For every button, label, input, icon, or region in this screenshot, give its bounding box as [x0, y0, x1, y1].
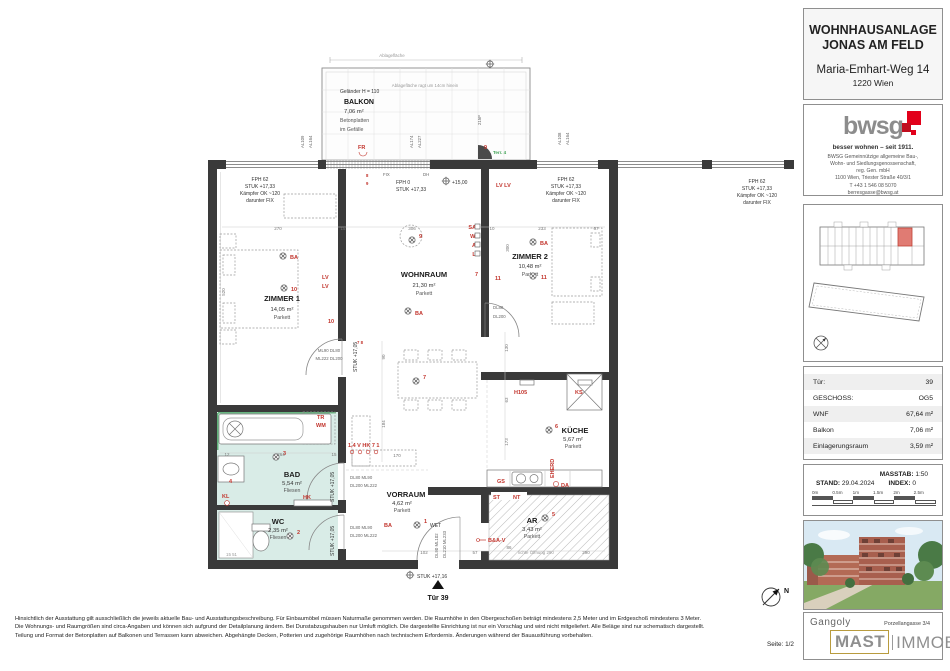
table-row: GESCHOSS: OG5 [804, 390, 942, 406]
al-label: AL108 [557, 132, 562, 145]
room-floor: Fliesen [284, 488, 301, 494]
mark: ST [493, 495, 501, 501]
room-floor: Parkett [416, 291, 433, 297]
mark: DA [561, 483, 569, 489]
outlet-symbol [414, 522, 420, 528]
mast-logo-block: Gangoly Porzellangasse 3/4 MAST IMMOBILI… [803, 612, 943, 660]
room-area: 2,35 m² [268, 528, 288, 534]
bwsg-address-line: Wohn- und Siedlungsgenossenschaft, [804, 161, 942, 168]
project-street: Maria-Emhart-Weg 14 [804, 64, 942, 76]
scale-tick: 1.5m [873, 490, 893, 495]
sliding-door-band [326, 160, 430, 169]
mast-logo: MAST IMMOBILIEN [830, 630, 936, 654]
window-annotations: FPH 62 STUK +17,33 Kämpfer OK ~120 darun… [240, 172, 777, 206]
room-floor: Parkett [524, 534, 541, 540]
mark: B&A-V [488, 538, 506, 544]
disclaimer-line: Teilung und Format der Betonplatten auf … [15, 632, 793, 640]
balkon-area: 7,06 m² [344, 109, 364, 115]
win-ann: FPH 0 [396, 180, 410, 186]
level-value: +15,00 [452, 180, 468, 186]
outlet-symbol [413, 378, 419, 384]
door-label: ML90 DL80 [318, 348, 341, 353]
win-ann: darunter FIX [743, 200, 771, 206]
sink-icon [530, 475, 538, 483]
disclaimer-line: Hinsichtlich der Ausstattung gilt aussch… [15, 615, 793, 623]
win-ann: STUK +17,33 [742, 186, 772, 192]
bwsg-address-line: 1100 Wien, Triester Straße 40/3/1 [804, 175, 942, 182]
door-label: DL200 ML222 [350, 483, 378, 488]
site-outline [809, 283, 924, 321]
room-floor: Fliesen [270, 535, 287, 541]
site-compass-icon [814, 336, 828, 350]
disclaimer-text: Hinsichtlich der Ausstattung gilt aussch… [15, 615, 793, 640]
win-ann: darunter FIX [552, 198, 580, 204]
win-ann: Kämpfer OK ~120 [240, 191, 280, 197]
project-name-line1: WOHNHAUSANLAGE [804, 23, 942, 38]
bwsg-address: BWSG Gemeinnützige allgemeine Bau-, Wohn… [804, 154, 942, 197]
room-area: 5,54 m² [282, 481, 302, 487]
mark: 5 [552, 512, 555, 518]
mark: BA [384, 523, 392, 529]
row-label: GESCHOSS: [813, 395, 853, 402]
room-area: 3,43 m² [522, 527, 542, 533]
mark: BA [415, 311, 423, 317]
bwsg-address-line: berresgasse@bwsg.at [804, 190, 942, 197]
index-value: 0 [912, 480, 916, 487]
room-label-balkon: BALKON [344, 99, 374, 106]
page-number: Seite: 1/2 [748, 641, 794, 648]
highlighted-unit [898, 228, 912, 246]
mark: LV [322, 284, 329, 290]
mark: 6 [555, 424, 558, 430]
bwsg-red-square-icon [911, 130, 916, 135]
scale-bar [812, 496, 936, 506]
door-label: DL80 [493, 305, 504, 310]
mark: EHERD [550, 459, 556, 478]
opening-note: lichte Öffnung 290 [518, 550, 554, 555]
door-label: DL200 ML222 [350, 533, 378, 538]
mark: WM [316, 423, 326, 429]
mark: 7 [423, 375, 426, 381]
scale-tick: 0.5m [832, 490, 852, 495]
level-label: STUK +17,05 [353, 342, 359, 372]
table-row: Balkon 7,06 m² [804, 422, 942, 438]
fr-mark: FR [358, 145, 365, 151]
bwsg-address-line: reg. Gen. mbH [804, 168, 942, 175]
dim: 90 [381, 354, 386, 360]
dim: 290 [582, 550, 590, 555]
table-row: Tür: 39 [804, 374, 942, 390]
dim: 520 [221, 288, 226, 296]
scale-tick: 1m [853, 490, 873, 495]
scale-tick: 2m [893, 490, 913, 495]
outlet-symbol [530, 273, 536, 279]
al-label: AL227 [417, 135, 422, 148]
bwsg-address-line: BWSG Gemeinnützige allgemeine Bau-, [804, 154, 942, 161]
project-name-line2: JONAS AM FELD [804, 38, 942, 53]
shaft-dims: 15 51 [226, 552, 238, 557]
north-label: N [784, 588, 789, 595]
dim: 173 [504, 438, 509, 446]
dim: 102 [420, 550, 428, 555]
al-label: AL109 [300, 135, 305, 148]
outlet-symbol [530, 239, 536, 245]
mark: BA [290, 255, 298, 261]
win-ann: DH [423, 172, 429, 177]
lv-marks: LV LV [496, 183, 511, 189]
dim: 233 [538, 226, 546, 231]
disclaimer-line: Die Wohnungs- und Raumgrößen sind circa-… [15, 623, 793, 631]
mark: HK [303, 495, 311, 501]
row-value: OG5 [919, 395, 933, 402]
entrance-door-label: WET [430, 523, 441, 529]
mast-address: Porzellangasse 3/4 [884, 621, 930, 627]
bwsg-red-square-icon [902, 123, 911, 132]
balcony-top-note: Ablagefläche [379, 53, 405, 58]
door-label: DL90 ML102 [434, 533, 439, 558]
outlet-symbol [542, 515, 548, 521]
terrace-door-tag: Terr. 4 [493, 150, 507, 155]
immobilien-wordmark: IMMOBILIEN [892, 635, 950, 650]
dim: 15 [340, 226, 346, 231]
mark: 10 [291, 287, 297, 293]
room-floor: Parkett [274, 315, 291, 321]
room-name: ZIMMER 2 [512, 252, 548, 261]
building-rendering [803, 520, 943, 610]
win-ann: STUK +17,33 [551, 184, 581, 190]
room-name: AR [527, 516, 538, 525]
row-label: Einlagerungsraum [813, 443, 868, 450]
al-label: 215P [477, 115, 482, 125]
room-floor: Parkett [394, 508, 411, 514]
dim: 130 [504, 344, 509, 352]
balcony-area: Ablagefläche Ablagefläche ragt um 14cm h… [322, 53, 530, 160]
row-label: WNF [813, 411, 828, 418]
door-label: DL210 ML233 [442, 530, 447, 558]
mark: 7 [475, 272, 478, 278]
dim: 86 [506, 545, 512, 550]
level-label: STUK +17,16 [417, 574, 447, 580]
outlet-symbol [280, 253, 286, 259]
al-label: AL164 [308, 135, 313, 148]
row-value: 39 [925, 379, 933, 386]
outlet-symbol [287, 533, 293, 539]
level-label: STUK +17,05 [330, 472, 336, 502]
scale-bar-labels: 0m 0.5m 1m 1.5m 2m 2.5m [812, 490, 934, 495]
site-plan-drawing [804, 205, 942, 361]
bwsg-wordmark: bwsg [843, 112, 903, 140]
project-title-block: WOHNHAUSANLAGE JONAS AM FELD Maria-Emhar… [803, 8, 943, 100]
win-ann: Kämpfer OK ~120 [546, 191, 586, 197]
outlet-symbol [405, 308, 411, 314]
dim: 170 [393, 453, 401, 458]
scale-block: MASSTAB: 1:50 STAND: 29.04.2024 INDEX: 0… [803, 464, 943, 516]
dim: 184 [381, 420, 386, 428]
room-name: ZIMMER 1 [264, 294, 300, 303]
level-symbol [442, 177, 450, 185]
index-label: INDEX: [889, 480, 911, 487]
balcony-mark-9: 9 [484, 145, 487, 151]
mark: LV [322, 275, 329, 281]
row-value: 67,64 m² [906, 411, 933, 418]
mark: GS [497, 479, 505, 485]
scale-tick: 2.5m [914, 490, 934, 495]
al-label: AL164 [565, 132, 570, 145]
mark: 11 [541, 275, 547, 281]
table-row: WNF 67,64 m² [804, 406, 942, 422]
mark: H105 [514, 390, 527, 396]
dim: 264 [277, 452, 285, 457]
entrance-door-number: Tür 39 [427, 595, 448, 602]
circuit-mark: 9 [366, 181, 369, 186]
table-row: Einlagerungsraum 3,59 m² [804, 438, 942, 454]
basin-icon [223, 463, 239, 475]
win-ann: FPH 62 [749, 179, 766, 185]
dim: 57 [472, 550, 478, 555]
bwsg-tagline: besser wohnen – seit 1911. [804, 144, 942, 151]
dim: 67 [593, 226, 599, 231]
door-label: DL80 ML90 [350, 475, 373, 480]
floorplan-sheet: { "header": {"line1":"WOHNHAUSANLAGE","l… [0, 0, 950, 671]
room-name: VORRAUM [387, 490, 426, 499]
dim: 63 [504, 397, 509, 403]
bwsg-logo-block: bwsg besser wohnen – seit 1911. BWSG Gem… [803, 104, 943, 196]
bwsg-address-line: T +43 1 546 08 5070 [804, 183, 942, 190]
dim: 10 [489, 226, 495, 231]
row-value: 7,06 m² [910, 427, 933, 434]
win-ann: STUK +17,33 [245, 184, 275, 190]
balcony-inner-note: Ablagefläche ragt um 14cm hinein [392, 83, 459, 88]
win-ann: FPH 62 [252, 177, 269, 183]
railing-label: Geländer H = 110 [340, 89, 379, 95]
mast-gold-frame-icon: MAST [830, 630, 889, 654]
masstab-label: MASSTAB: [880, 471, 914, 478]
balkon-material-1: Betonplatten [340, 118, 369, 124]
door-label: DL80 ML90 [350, 525, 373, 530]
win-ann: Kämpfer OK ~120 [737, 193, 777, 199]
room-floor: Parkett [565, 444, 582, 450]
outlet-symbol [409, 237, 415, 243]
win-ann: darunter FIX [246, 198, 274, 204]
dim: 12 [224, 452, 230, 457]
dim: 270 [274, 226, 282, 231]
level-symbol [406, 571, 414, 579]
room-area: 5,67 m² [563, 437, 583, 443]
mark: BA [540, 241, 548, 247]
mark: 10 [328, 319, 334, 325]
mark: 9 [419, 234, 422, 240]
dim: 300 [505, 244, 510, 252]
north-arrow-icon: N [762, 588, 789, 606]
row-label: Tür: [813, 379, 825, 386]
win-ann: FIX [383, 172, 390, 177]
win-ann: FPH 62 [558, 177, 575, 183]
level-label: STUK +17,05 [330, 526, 336, 556]
project-city: 1220 Wien [804, 78, 942, 88]
circuit-mark: 8 [366, 173, 369, 178]
mark: 11 [495, 276, 501, 282]
toilet-icon [253, 531, 269, 551]
room-area: 10,48 m² [519, 264, 542, 270]
mark: KS [575, 390, 583, 396]
sink-icon [516, 474, 525, 483]
outlet-symbol [546, 427, 552, 433]
level-symbol [486, 60, 494, 68]
dim: 15 [331, 452, 337, 457]
win-ann: STUK +17,33 [396, 187, 426, 193]
mark: 1 [424, 519, 427, 525]
bwsg-logo: bwsg [843, 113, 903, 143]
unit-info-table: Tür: 39 GESCHOSS: OG5 WNF 67,64 m² Balko… [803, 366, 943, 460]
room-area: 14,05 m² [271, 307, 294, 313]
room-name: BAD [284, 470, 301, 479]
row-label: Balkon [813, 427, 834, 434]
mast-wordmark: MAST [835, 632, 885, 651]
rendering-image [804, 521, 942, 609]
room-name: WOHNRAUM [401, 270, 447, 279]
mark: 1,4 V HK 7 1 [348, 443, 380, 449]
outlet-symbol [281, 285, 287, 291]
mark: 2 [297, 530, 300, 536]
site-plan-block [803, 204, 943, 362]
balkon-material-2: im Gefälle [340, 127, 363, 133]
stand-label: STAND: [816, 480, 840, 487]
mark: KL [222, 494, 230, 500]
dim: 306 [408, 226, 416, 231]
stand-value: 29.04.2024 [842, 480, 875, 487]
gangoly-label: Gangoly [810, 617, 851, 628]
mark: TR [317, 415, 324, 421]
door-label: DL200 [493, 314, 506, 319]
door-label: ML222 DL200 [316, 356, 344, 361]
mark: NT [513, 495, 521, 501]
room-name: KÜCHE [562, 426, 589, 435]
room-name: WC [272, 517, 285, 526]
radiator [294, 500, 332, 506]
entrance-marker [432, 580, 444, 589]
scale-tick: 0m [812, 490, 832, 495]
room-area: 21,30 m² [413, 283, 436, 289]
row-value: 3,59 m² [910, 443, 933, 450]
al-label: AL174 [409, 135, 414, 148]
masstab-value: 1:50 [915, 471, 928, 478]
room-area: 4,62 m² [392, 501, 412, 507]
